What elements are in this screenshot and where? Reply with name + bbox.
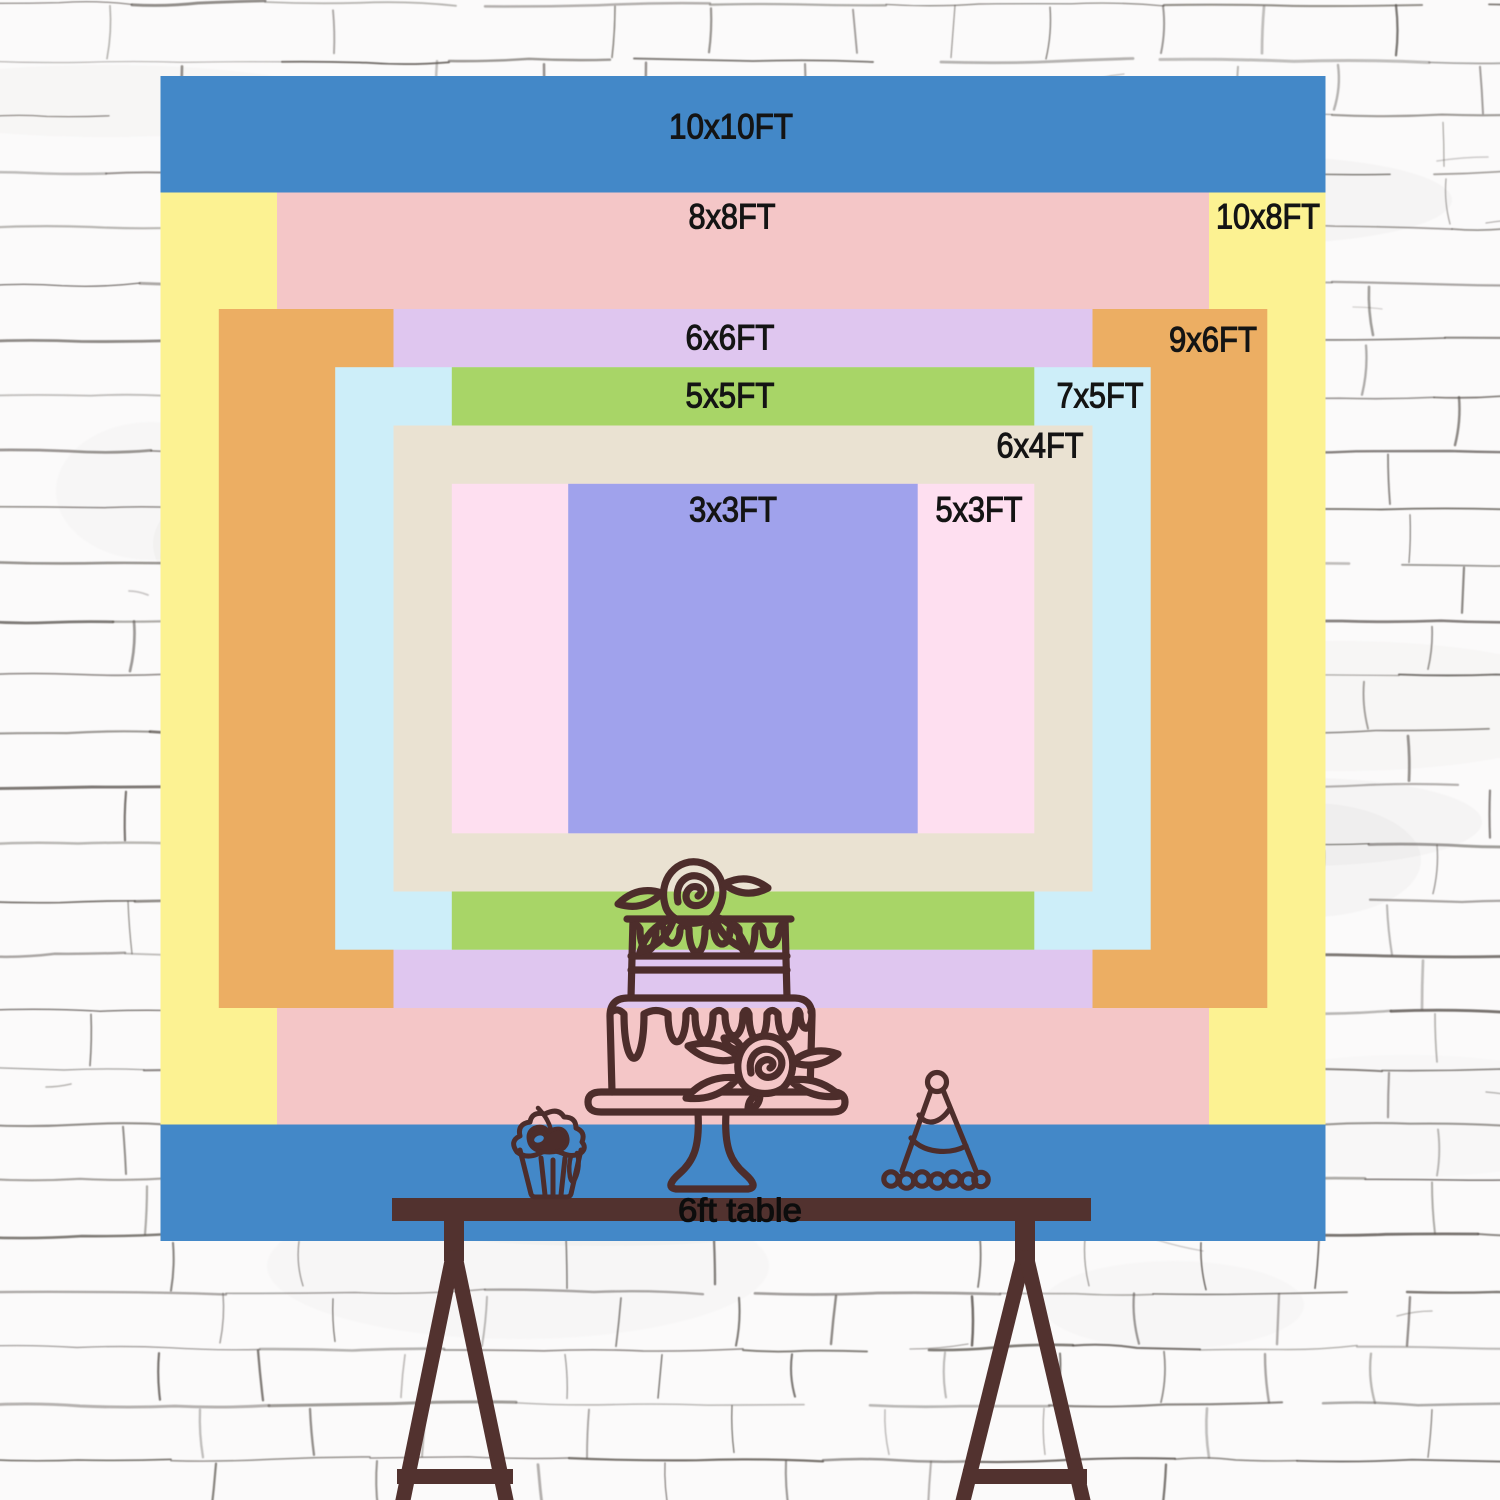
svg-text:6ft table: 6ft table xyxy=(678,1192,802,1229)
svg-text:6x6FT: 6x6FT xyxy=(686,319,775,358)
svg-text:7x5FT: 7x5FT xyxy=(1057,377,1144,416)
svg-text:3x3FT: 3x3FT xyxy=(689,491,777,530)
svg-text:10x8FT: 10x8FT xyxy=(1216,198,1320,237)
svg-text:8x8FT: 8x8FT xyxy=(689,198,776,237)
svg-text:6x4FT: 6x4FT xyxy=(997,427,1084,466)
svg-text:9x6FT: 9x6FT xyxy=(1169,321,1257,360)
svg-text:5x3FT: 5x3FT xyxy=(936,491,1023,530)
svg-text:10x10FT: 10x10FT xyxy=(669,108,793,147)
svg-text:5x5FT: 5x5FT xyxy=(686,377,775,416)
